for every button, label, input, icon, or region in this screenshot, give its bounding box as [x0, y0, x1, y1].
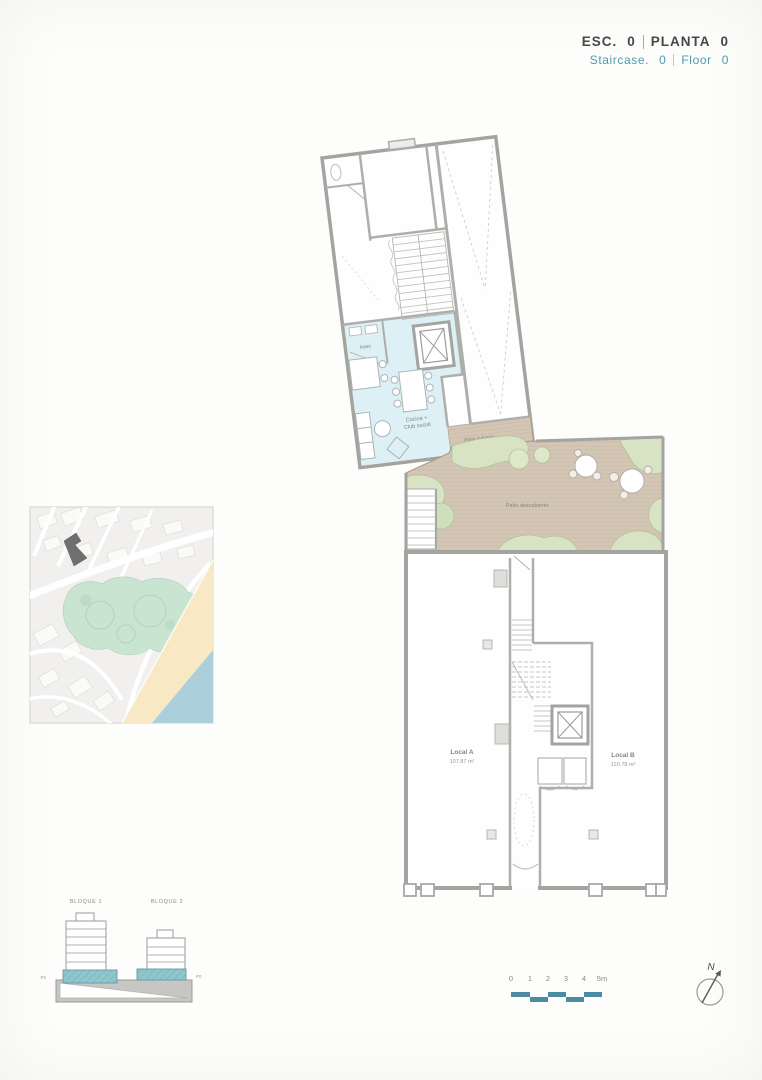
sheet-graphics: Aseo Cocina + Club social Patio cubierto — [0, 0, 762, 1080]
scale-tick: 2 — [546, 974, 550, 983]
label-local-b-area: 120.78 m² — [611, 762, 636, 768]
label-level-right: P0 — [196, 974, 202, 979]
duct — [495, 724, 509, 744]
patio-stair — [407, 489, 436, 549]
floor-plan: Aseo Cocina + Club social Patio cubierto — [321, 129, 666, 896]
lower-building: Local A 107.87 m² Local B 120.78 m² — [404, 552, 666, 896]
divider-icon — [673, 54, 674, 66]
scale-bar-segments — [511, 992, 602, 1002]
title-block: ESC.0 PLANTA0 Staircase.0 Floor0 — [582, 34, 729, 67]
upper-building: Aseo Cocina + Club social Patio cubierto — [321, 129, 534, 468]
label-local-b: Local B — [611, 752, 635, 759]
north-arrow: N — [697, 962, 723, 1005]
label-local-a-area: 107.87 m² — [450, 759, 475, 765]
tower-2 — [137, 930, 186, 980]
entrance-gap — [512, 883, 538, 892]
drawing-sheet: ESC.0 PLANTA0 Staircase.0 Floor0 — [0, 0, 762, 1080]
label-local-a: Local A — [450, 749, 474, 756]
scale-tick: 5m — [597, 974, 607, 983]
label-patio-descubierto: Patio descubierto — [506, 503, 549, 509]
staircase-value: 0 — [659, 53, 666, 67]
label-bloque-1: BLOQUE 1 — [70, 899, 102, 905]
scale-tick: 1 — [528, 974, 532, 983]
floor-value: 0 — [722, 53, 729, 67]
staircase-label: Staircase. — [590, 53, 649, 67]
north-label: N — [707, 962, 715, 973]
planta-value: 0 — [720, 34, 729, 49]
elevator-upper — [413, 322, 454, 370]
planta-label: PLANTA — [651, 34, 711, 49]
elevator-lower — [552, 706, 588, 744]
esc-label: ESC. — [582, 34, 618, 49]
floor-label: Floor — [681, 53, 711, 67]
label-level-left: P0 — [40, 975, 46, 980]
scale-tick: 3 — [564, 974, 568, 983]
duct — [494, 570, 507, 587]
label-bloque-2: BLOQUE 2 — [151, 899, 183, 905]
tower-1 — [63, 913, 117, 983]
scale-bar: 0 1 2 3 4 5m — [509, 974, 607, 1002]
divider-icon — [643, 35, 644, 49]
title-en: Staircase.0 Floor0 — [582, 53, 729, 67]
title-es: ESC.0 PLANTA0 — [582, 34, 729, 49]
scale-tick: 4 — [582, 974, 586, 983]
site-map — [26, 505, 216, 725]
elevation-diagram: BLOQUE 1 BLOQUE 2 P0 P0 — [40, 899, 202, 1002]
esc-value: 0 — [627, 34, 636, 49]
scale-tick: 0 — [509, 974, 513, 983]
